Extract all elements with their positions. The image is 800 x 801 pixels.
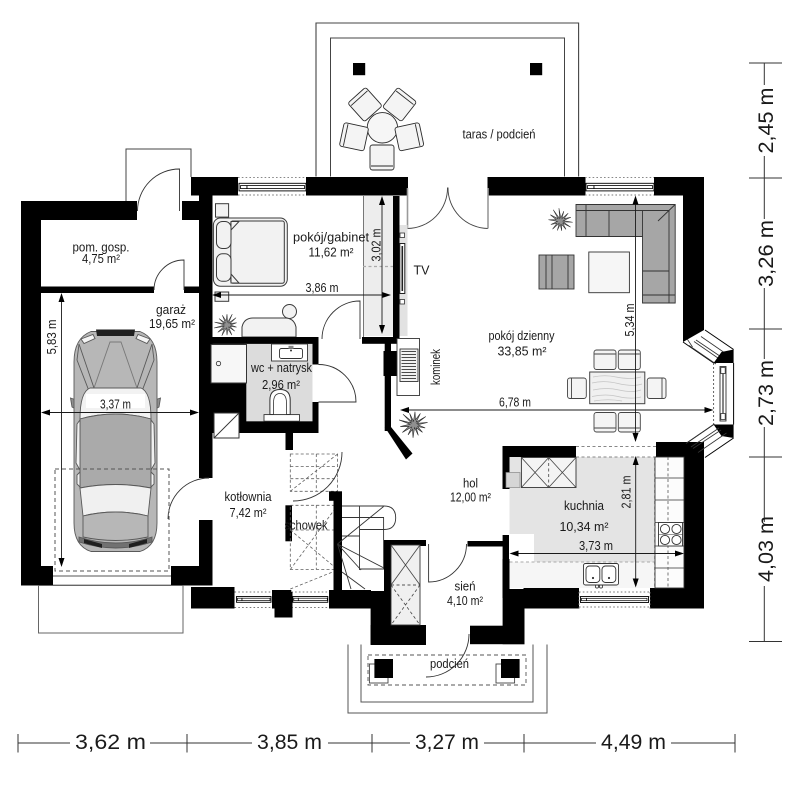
- svg-text:2,45 m: 2,45 m: [754, 88, 778, 154]
- svg-text:4,49 m: 4,49 m: [601, 730, 666, 754]
- svg-text:kotłownia: kotłownia: [225, 489, 273, 504]
- svg-text:4,10 m²: 4,10 m²: [447, 593, 484, 608]
- svg-text:5,34 m: 5,34 m: [622, 304, 637, 337]
- svg-text:schowek: schowek: [285, 518, 328, 533]
- svg-text:taras / podcień: taras / podcień: [463, 127, 536, 142]
- svg-text:kominek: kominek: [428, 349, 443, 385]
- svg-text:2,81 m: 2,81 m: [619, 476, 634, 509]
- svg-text:2,73 m: 2,73 m: [754, 360, 778, 426]
- svg-text:10,34 m²: 10,34 m²: [560, 519, 610, 534]
- svg-text:pokój dzienny: pokój dzienny: [489, 328, 555, 343]
- svg-text:7,42 m²: 7,42 m²: [230, 505, 268, 520]
- svg-text:garaż: garaż: [156, 302, 186, 317]
- svg-text:3,27 m: 3,27 m: [415, 730, 479, 754]
- svg-text:kuchnia: kuchnia: [564, 498, 605, 513]
- svg-text:3,02 m: 3,02 m: [369, 229, 384, 262]
- svg-text:3,37 m: 3,37 m: [100, 397, 131, 412]
- svg-text:4,75 m²: 4,75 m²: [82, 251, 121, 266]
- svg-text:19,65 m²: 19,65 m²: [149, 316, 196, 331]
- svg-text:2,96 m²: 2,96 m²: [262, 377, 301, 392]
- svg-text:pokój/gabinet: pokój/gabinet: [293, 230, 369, 245]
- svg-text:6,78 m: 6,78 m: [499, 395, 531, 410]
- svg-text:5,83 m: 5,83 m: [44, 320, 59, 355]
- svg-text:wc + natrysk: wc + natrysk: [250, 360, 312, 375]
- svg-text:hol: hol: [463, 476, 478, 491]
- svg-text:3,73 m: 3,73 m: [579, 538, 613, 553]
- svg-text:12,00 m²: 12,00 m²: [450, 490, 492, 505]
- svg-text:33,85 m²: 33,85 m²: [498, 344, 548, 359]
- svg-text:3,86 m: 3,86 m: [306, 280, 339, 295]
- svg-text:3,26 m: 3,26 m: [754, 220, 778, 287]
- svg-text:3,62 m: 3,62 m: [75, 730, 146, 754]
- svg-text:sień: sień: [455, 579, 476, 594]
- svg-text:podcień: podcień: [430, 656, 469, 671]
- svg-text:TV: TV: [414, 263, 430, 278]
- svg-text:11,62 m²: 11,62 m²: [309, 245, 355, 260]
- svg-text:4,03 m: 4,03 m: [754, 516, 778, 582]
- svg-text:3,85 m: 3,85 m: [257, 730, 322, 754]
